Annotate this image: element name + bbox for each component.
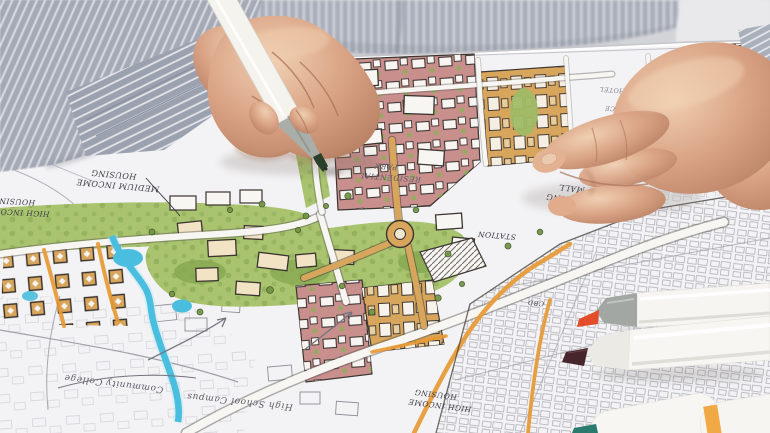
roundabout-center: [395, 229, 406, 240]
lake: [113, 249, 143, 267]
annotation-cbd: CBD: [527, 298, 544, 307]
pen-tip-point: [325, 168, 328, 171]
photo-urban-planning-scene: HOUSING MEDIUM INCOME HOUSING HIGH INCOM…: [0, 0, 770, 433]
left-thumb-tip: [548, 196, 576, 216]
pond-2: [22, 291, 38, 301]
marker-shadow-2: [595, 367, 765, 381]
pond-1: [172, 300, 192, 313]
tan-block-courtyard: [510, 88, 538, 136]
